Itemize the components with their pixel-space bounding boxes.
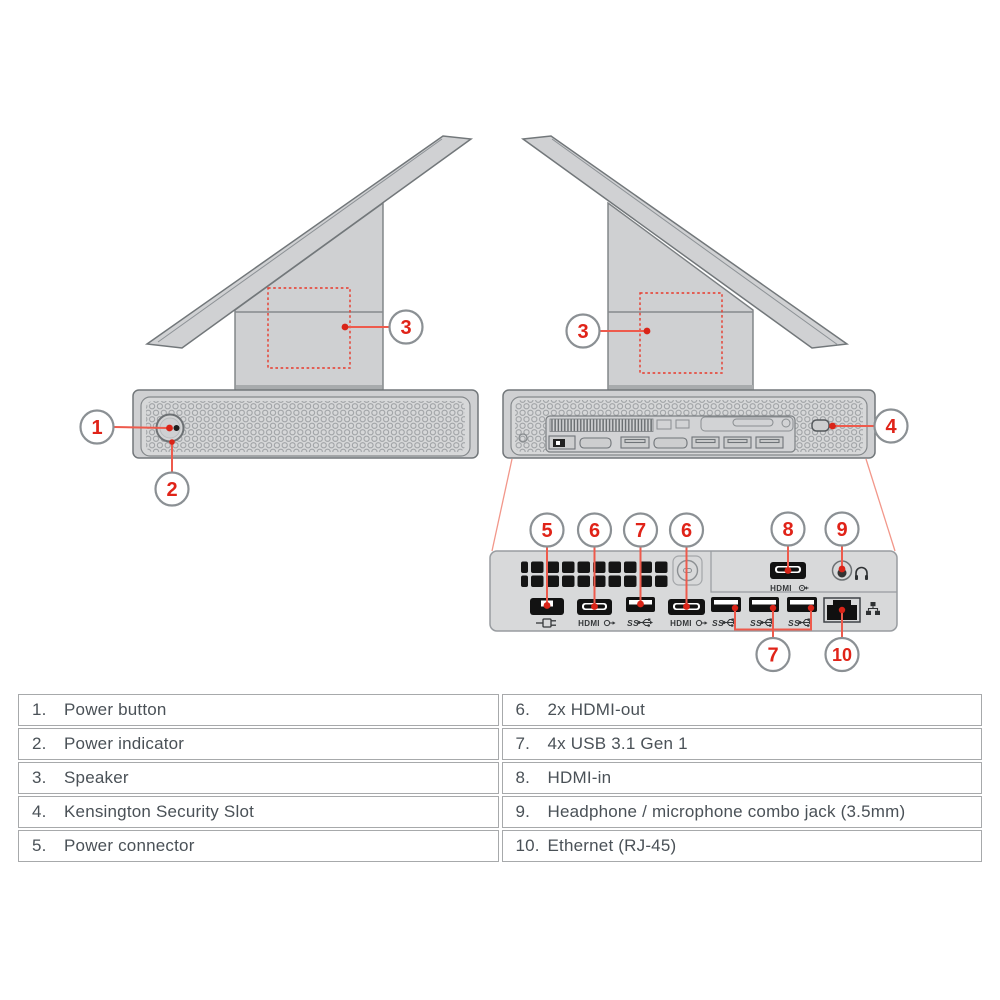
svg-text:7: 7 <box>635 520 646 542</box>
device-diagram: HDMI HDMI <box>0 0 1000 690</box>
legend-label: Power button <box>64 700 167 720</box>
hardware-overview-page: HDMI HDMI <box>0 0 1000 1000</box>
legend-row-10: 10. Ethernet (RJ-45) <box>502 830 983 862</box>
legend-num: 6. <box>516 700 548 720</box>
svg-text:6: 6 <box>589 520 600 542</box>
zoom-guide-line <box>492 459 512 551</box>
legend-row-1: 1. Power button <box>18 694 499 726</box>
legend-row-6: 6. 2x HDMI-out <box>502 694 983 726</box>
svg-text:7: 7 <box>767 645 778 667</box>
callout-4-kensington-slot: 4 <box>875 410 908 443</box>
legend-row-8: 8. HDMI-in <box>502 762 983 794</box>
usb-4-tongue <box>790 600 814 605</box>
rear-hdmi-port[interactable] <box>580 438 611 448</box>
rear-port-row <box>549 436 783 449</box>
callout-10-ethernet: 10 <box>826 638 859 671</box>
usb-1-label: SS <box>627 618 639 628</box>
svg-text:6: 6 <box>681 520 692 542</box>
vent-block-row <box>531 576 668 588</box>
legend-table: 1. Power button 6. 2x HDMI-out 2. Power … <box>18 694 982 862</box>
device-front-view <box>133 136 478 458</box>
legend-row-5: 5. Power connector <box>18 830 499 862</box>
vent-block-row <box>531 562 668 574</box>
legend-label: HDMI-in <box>548 768 612 788</box>
legend-num: 4. <box>32 802 64 822</box>
callout-2-power-indicator: 2 <box>156 473 189 506</box>
legend-row-2: 2. Power indicator <box>18 728 499 760</box>
legend-label: Kensington Security Slot <box>64 802 254 822</box>
hdmi-out-2-label: HDMI <box>670 619 692 628</box>
callout-3-speaker-right: 3 <box>567 315 600 348</box>
callout-6-hdmi-out-2: 6 <box>670 514 703 547</box>
legend-label: Headphone / microphone combo jack (3.5mm… <box>548 802 906 822</box>
legend-row-9: 9. Headphone / microphone combo jack (3.… <box>502 796 983 828</box>
legend-label: 2x HDMI-out <box>548 700 646 720</box>
hdmi-out-1-label: HDMI <box>578 619 600 628</box>
power-indicator-led <box>174 425 180 431</box>
svg-text:8: 8 <box>782 519 793 541</box>
legend-num: 7. <box>516 734 548 754</box>
rear-port-detail-panel: HDMI HDMI <box>490 551 897 631</box>
callout-7-usb-group: 7 <box>757 638 790 671</box>
svg-text:9: 9 <box>836 519 847 541</box>
svg-text:10: 10 <box>832 645 852 665</box>
usb-2-label: SS <box>712 618 724 628</box>
hdmi-in-label: HDMI <box>770 584 792 593</box>
legend-num: 2. <box>32 734 64 754</box>
legend-row-7: 7. 4x USB 3.1 Gen 1 <box>502 728 983 760</box>
legend-num: 9. <box>516 802 548 822</box>
callout-6-hdmi-out-1: 6 <box>578 514 611 547</box>
svg-text:3: 3 <box>400 317 411 339</box>
legend-row-4: 4. Kensington Security Slot <box>18 796 499 828</box>
legend-label: Ethernet (RJ-45) <box>548 836 677 856</box>
callout-7-usb-1: 7 <box>624 514 657 547</box>
kensington-security-slot[interactable] <box>812 420 829 431</box>
callout-8-hdmi-in: 8 <box>772 513 805 546</box>
rear-hdmi-port[interactable] <box>654 438 687 448</box>
vent-block <box>521 576 528 588</box>
vent-block <box>521 562 528 574</box>
callout-5-power-connector: 5 <box>531 514 564 547</box>
svg-text:3: 3 <box>577 321 588 343</box>
vent-ribs <box>550 419 653 432</box>
legend-num: 3. <box>32 768 64 788</box>
ethernet-port-tab <box>833 600 851 607</box>
usb-3-label: SS <box>750 618 762 628</box>
svg-text:2: 2 <box>166 479 177 501</box>
legend-label: 4x USB 3.1 Gen 1 <box>548 734 688 754</box>
callout-1-power-button: 1 <box>81 411 114 444</box>
speaker-grille-holes <box>146 401 465 452</box>
legend-label: Speaker <box>64 768 129 788</box>
legend-row-3: 3. Speaker <box>18 762 499 794</box>
legend-label: Power connector <box>64 836 195 856</box>
legend-num: 1. <box>32 700 64 720</box>
legend-label: Power indicator <box>64 734 184 754</box>
usb-4-label: SS <box>788 618 800 628</box>
device-rear-view <box>503 136 875 458</box>
legend-num: 8. <box>516 768 548 788</box>
callout-9-audio-jack: 9 <box>826 513 859 546</box>
rear-power-port-dot <box>556 441 560 445</box>
usb-2-tongue <box>714 600 738 605</box>
usb-3-tongue <box>752 600 776 605</box>
zoom-guide-line <box>866 459 895 551</box>
svg-text:4: 4 <box>885 416 897 438</box>
svg-text:5: 5 <box>541 520 552 542</box>
legend-num: 10. <box>516 836 548 856</box>
legend-num: 5. <box>32 836 64 856</box>
svg-text:1: 1 <box>91 417 102 439</box>
callout-3-speaker-left: 3 <box>390 311 423 344</box>
